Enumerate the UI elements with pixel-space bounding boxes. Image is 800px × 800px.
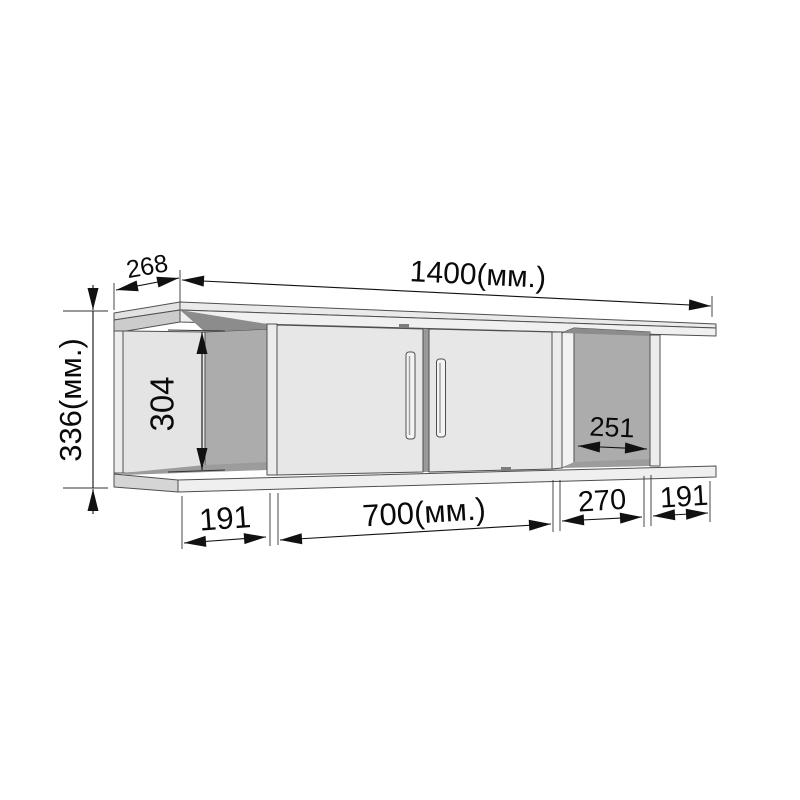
doors: [277, 324, 552, 475]
dim-total-width-label: 1400(мм.): [409, 255, 547, 295]
dim-inner-height-label: 304: [144, 376, 181, 431]
dim-depth-label: 268: [124, 249, 170, 284]
dim-total-height-label: 336(мм.): [53, 338, 88, 462]
door-hinge-mark-bottom: [501, 467, 511, 471]
right-compartment-back-panel: [574, 328, 650, 463]
dimension-depth: 268: [114, 249, 180, 310]
door-right: [429, 329, 552, 472]
divider-right-inner-face: [562, 328, 574, 468]
left-compartment-back-panel: [205, 329, 267, 470]
wall-shelf-dimension-drawing: 268 1400(мм.) 336(мм.) 304 251: [0, 0, 800, 800]
door-hinge-mark-top: [399, 324, 409, 328]
dim-doors-700-label: 700(мм.): [361, 491, 486, 533]
drawing-canvas: 268 1400(мм.) 336(мм.) 304 251: [0, 0, 800, 800]
dimension-bottom-left-191: 191: [182, 493, 270, 549]
door-gap: [423, 329, 429, 472]
dimension-doors-700: 700(мм.): [278, 480, 553, 545]
door-right-handle: [437, 359, 446, 437]
dimension-total-height: 336(мм.): [53, 285, 108, 514]
divider-left: [267, 324, 277, 475]
dim-bottom-left-191-label: 191: [198, 499, 252, 538]
door-left-handle: [406, 352, 415, 439]
dimension-right-270: 270: [560, 476, 644, 531]
divider-right: [552, 332, 562, 469]
right-side-panel: [650, 335, 660, 466]
dim-inner-width-label: 251: [589, 411, 635, 443]
door-left: [277, 325, 423, 475]
bottom-panel-left-end-face: [114, 474, 178, 492]
dim-right-270-label: 270: [577, 484, 627, 519]
left-side-panel-edge: [114, 331, 123, 473]
dim-overhang-191-label: 191: [659, 480, 709, 515]
dimension-overhang-191: 191: [651, 475, 710, 526]
